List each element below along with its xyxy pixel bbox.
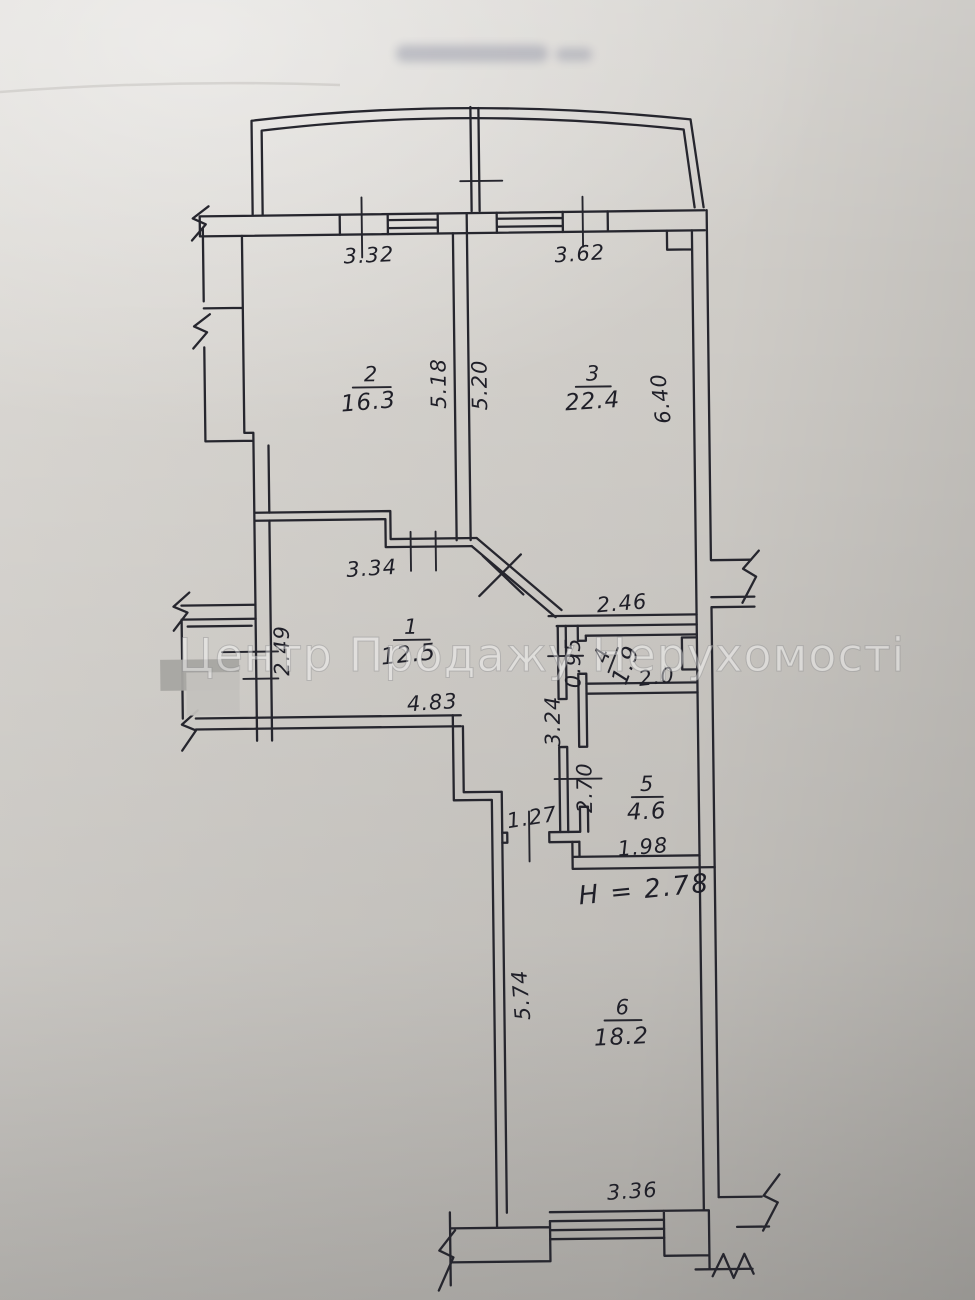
floor-plan-drawing: 3.32 3.62 2 16.3 3 22.4 5.18 5.20 6.40 3… [0, 0, 975, 1300]
wall-break-symbol [742, 551, 760, 603]
room-2-number: 2 [364, 362, 378, 386]
dim-room6-depth: 5.74 [507, 969, 535, 1022]
dim-corridor-depth: 3.24 [541, 696, 566, 747]
walls [175, 104, 769, 1289]
dimension-ticks [216, 195, 602, 866]
dim-room3-depth: 6.40 [646, 372, 676, 425]
dim-room6-width: 3.36 [606, 1178, 658, 1205]
room-5-number: 5 [640, 772, 654, 796]
watermark-text: Центр Продажу Нерухомості [178, 628, 905, 682]
paper-crease [0, 83, 340, 92]
note-ceiling-height: H = 2.78 [577, 869, 711, 912]
labels: 3.32 3.62 2 16.3 3 22.4 5.18 5.20 6.40 3… [265, 238, 715, 1208]
dim-hall-top: 3.34 [346, 555, 398, 582]
wall-break-symbol [762, 1174, 780, 1230]
wall-break-symbol [193, 314, 210, 348]
window-bottom [550, 1220, 664, 1239]
room-6-area: 18.2 [593, 1023, 649, 1052]
dim-top-window-left: 3.32 [343, 242, 395, 268]
room-3-area: 22.4 [564, 387, 621, 417]
window-top-right [497, 211, 608, 232]
room-2-label: 2 16.3 [340, 362, 398, 418]
wall-break-symbol [182, 710, 198, 750]
ghost-text-smudge [396, 45, 592, 62]
plan-group: 3.32 3.62 2 16.3 3 22.4 5.18 5.20 6.40 3… [153, 103, 780, 1293]
window-top-left [340, 213, 467, 235]
room-3-label: 3 22.4 [564, 361, 621, 416]
dim-hall-bottom: 4.83 [406, 689, 458, 716]
dim-room3-bottom: 2.46 [596, 589, 649, 617]
dim-bath-width: 1.98 [617, 833, 670, 861]
dim-top-window-right: 3.62 [554, 240, 606, 267]
wall-break-symbol [438, 1230, 456, 1290]
dim-bath-door-side: 2.70 [572, 762, 597, 813]
room-6-number: 6 [616, 995, 630, 1019]
wall-break-symbol [712, 1254, 753, 1278]
room-5-area: 4.6 [626, 798, 667, 826]
floor-plan-photo: 3.32 3.62 2 16.3 3 22.4 5.18 5.20 6.40 3… [0, 0, 975, 1300]
dim-room2-depth-left: 5.18 [426, 358, 451, 409]
room-5-label: 5 4.6 [626, 772, 667, 826]
room-2-area: 16.3 [340, 387, 397, 417]
dim-room2-depth-right: 5.20 [467, 359, 492, 410]
room-6-label: 6 18.2 [593, 995, 650, 1052]
dim-hall-door: 1.27 [505, 802, 559, 833]
door-cross-mark [479, 554, 523, 596]
balcony-outline [251, 104, 703, 215]
balcony-divider-tick [460, 181, 502, 182]
room-3-number: 3 [586, 362, 600, 386]
